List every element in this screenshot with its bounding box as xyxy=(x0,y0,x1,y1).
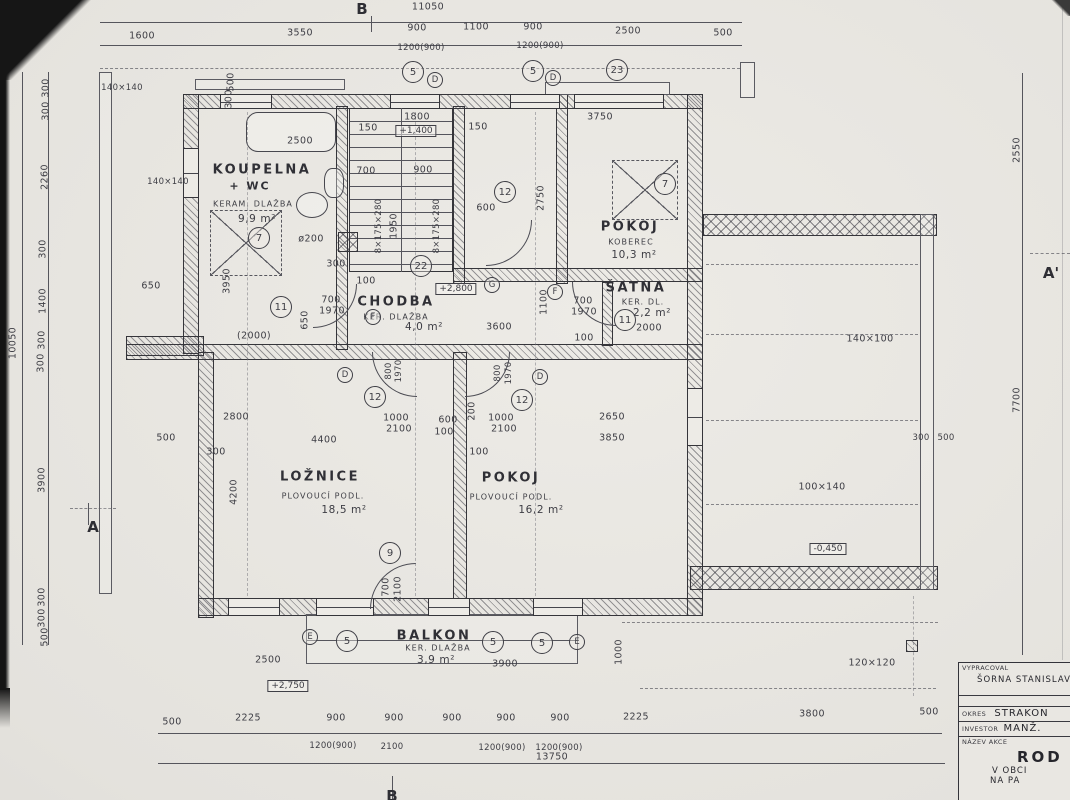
marker-5: 5 xyxy=(402,61,424,83)
room-sub-plovouc-podl-: PLOVOUCÍ PODL. xyxy=(470,493,553,502)
dim-2650: 2650 xyxy=(599,412,625,423)
wall-left-upper xyxy=(183,94,199,354)
dim-1400: 1400 xyxy=(38,288,49,314)
dim-300: 300 xyxy=(41,78,52,97)
wall-terrace-right xyxy=(920,214,934,590)
room-sub-ker-dl-: KER. DL. xyxy=(622,298,665,307)
elevation-plus-1400: +1,400 xyxy=(395,125,436,137)
window-right xyxy=(687,388,703,446)
floor-plan-photo: BBAA'11050160035509001200(900)1100900120… xyxy=(0,0,1070,800)
dim-300: 300 xyxy=(38,239,49,258)
wall-stub-top-right xyxy=(740,62,755,98)
beam-top-left xyxy=(195,79,345,90)
marker-g: G xyxy=(484,277,500,293)
dim-300: 300 xyxy=(224,89,235,108)
dim-sub-300: 300 xyxy=(912,433,929,443)
marker-22: 22 xyxy=(410,255,432,277)
axis-line-vertical xyxy=(415,112,416,596)
dim-1970: 1970 xyxy=(571,307,597,318)
dim-sub-1200-900-: 1200(900) xyxy=(478,743,525,753)
titleblock-nazev-label: NÁZEV AKCE xyxy=(962,738,1070,746)
room-label-wc: + WC xyxy=(229,180,270,193)
marker-9: 9 xyxy=(379,542,401,564)
marker-e: E xyxy=(302,629,318,645)
dim-650: 650 xyxy=(141,281,160,292)
room-label-balkon: BALKON xyxy=(397,629,472,644)
dim-3900: 3900 xyxy=(37,467,48,493)
door-arc-pokoj-top xyxy=(486,220,532,266)
photo-corner-top-right xyxy=(1044,0,1070,16)
dim-3550: 3550 xyxy=(287,28,313,39)
marker-f: F xyxy=(365,309,381,325)
dim-700: 700 xyxy=(573,296,592,307)
dim-2225: 2225 xyxy=(623,712,649,723)
titleblock-nazev-line3: NA PA xyxy=(990,776,1070,786)
dim-sub-8-175-280: 8×175×280 xyxy=(432,199,442,254)
dim-900: 900 xyxy=(442,713,461,724)
dim-200: 200 xyxy=(467,401,478,420)
dim-3600: 3600 xyxy=(486,322,512,333)
marker-f: F xyxy=(547,284,563,300)
dim-500: 500 xyxy=(40,627,51,646)
dim-2260: 2260 xyxy=(40,164,51,190)
dim-1800: 1800 xyxy=(404,112,430,123)
marker-d: D xyxy=(545,70,561,86)
room-sub-ker-dla-ba: KER. DLAŽBA xyxy=(405,644,470,653)
window-top-3 xyxy=(510,94,560,109)
elevation-plus-2750: +2,750 xyxy=(267,680,308,692)
terrace-line-lower xyxy=(622,622,938,623)
area-10-3-m-: 10,3 m² xyxy=(611,249,656,261)
wall-stair-right xyxy=(453,106,465,284)
titleblock-vypracoval-label: VYPRACOVAL xyxy=(962,664,1070,672)
marker-7: 7 xyxy=(248,227,270,249)
dim-300: 300 xyxy=(41,101,52,120)
dim-650: 650 xyxy=(300,310,311,329)
washbasin xyxy=(296,192,328,218)
axis-b-tick-top xyxy=(371,16,372,32)
dim-300: 300 xyxy=(37,330,48,349)
room-label-pokoj-bottom: POKOJ xyxy=(482,471,540,486)
dim-300: 300 xyxy=(37,608,48,627)
dim-2500: 2500 xyxy=(255,655,281,666)
dim-600: 600 xyxy=(438,415,457,426)
wall-pokoj-top-left xyxy=(556,94,568,284)
dim-line-bottom-total xyxy=(158,763,945,764)
room-label-koupelna: KOUPELNA xyxy=(213,163,312,178)
room-sub-keram-dla-ba: KERAM. DLAŽBA xyxy=(213,200,293,209)
marker-11: 11 xyxy=(614,309,636,331)
door-balcony-opening xyxy=(428,598,470,616)
dim-1950: 1950 xyxy=(389,213,400,239)
dim-300: 300 xyxy=(326,259,345,270)
dim-line-left-segments xyxy=(48,72,49,645)
dim-2100: 2100 xyxy=(386,424,412,435)
toilet xyxy=(324,168,344,198)
dim-900: 900 xyxy=(326,713,345,724)
dim-4400: 4400 xyxy=(311,435,337,446)
terrace-line xyxy=(706,264,918,265)
marker-12: 12 xyxy=(511,389,533,411)
dim-140-100: 140×100 xyxy=(846,334,893,345)
dim-1600: 1600 xyxy=(129,31,155,42)
dim-900: 900 xyxy=(384,713,403,724)
dim-sub-140-140: 140×140 xyxy=(147,177,189,187)
dim-150: 150 xyxy=(358,123,377,134)
titleblock-investor-value: MANŽ. xyxy=(1004,723,1042,734)
marker-7: 7 xyxy=(654,173,676,195)
dim-900: 900 xyxy=(496,713,515,724)
dim-3750: 3750 xyxy=(587,112,613,123)
terrace-line-vertical xyxy=(913,596,914,696)
dim-2000: 2000 xyxy=(636,323,662,334)
window-top-4 xyxy=(574,94,664,109)
dim-3850: 3850 xyxy=(599,433,625,444)
wall-right xyxy=(687,94,703,616)
marker-d: D xyxy=(532,369,548,385)
dim-500: 500 xyxy=(919,707,938,718)
marker-e: E xyxy=(569,634,585,650)
dim-1000: 1000 xyxy=(383,413,409,424)
dim-100: 100 xyxy=(434,427,453,438)
dim-100: 100 xyxy=(574,333,593,344)
paper-fold-line xyxy=(1062,0,1063,660)
section-a: A xyxy=(87,518,99,536)
dim-sub-8-175-280: 8×175×280 xyxy=(374,199,384,254)
room-label-chodba: CHODBA xyxy=(357,295,434,310)
dim-700: 700 xyxy=(381,577,392,596)
dim-2100: 2100 xyxy=(491,424,517,435)
dim-900: 900 xyxy=(523,22,542,33)
dim-1970: 1970 xyxy=(319,306,345,317)
dim-2550: 2550 xyxy=(1012,137,1023,163)
dim-300: 300 xyxy=(37,587,48,606)
section-a-prime-line xyxy=(1030,253,1070,254)
window-bottom-3 xyxy=(533,598,583,616)
dim-3800: 3800 xyxy=(799,709,825,720)
titleblock-investor-label: INVESTOR xyxy=(962,725,998,733)
dim-3950: 3950 xyxy=(222,268,233,294)
titleblock-vypracoval-value: ŠORNA STANISLAV xyxy=(962,675,1070,685)
dim-sub-2100: 2100 xyxy=(381,742,404,752)
room-sub-plovouc-podl-: PLOVOUCÍ PODL. xyxy=(282,492,365,501)
titleblock-nazev-line2: V OBCI xyxy=(992,766,1070,776)
dim-100: 100 xyxy=(469,447,488,458)
marker-5: 5 xyxy=(531,632,553,654)
dim-1000: 1000 xyxy=(488,413,514,424)
dim-2100: 2100 xyxy=(393,576,404,602)
area-3-9-m-: 3,9 m² xyxy=(417,654,455,666)
dim-4200: 4200 xyxy=(229,479,240,505)
dim-1100: 1100 xyxy=(463,22,489,33)
axis-b-top: B xyxy=(356,0,367,18)
wall-left-lower xyxy=(198,352,214,618)
dim-sub-1200-900-: 1200(900) xyxy=(397,43,444,53)
dim-700: 700 xyxy=(356,166,375,177)
room-sub-koberec: KOBEREC xyxy=(608,238,654,247)
floor-drain xyxy=(338,232,358,252)
room-label-satna: ŠATNA xyxy=(606,281,667,296)
dim-sub-140-140: 140×140 xyxy=(101,83,143,93)
dim-500: 500 xyxy=(162,717,181,728)
dim--2000-: (2000) xyxy=(237,331,271,342)
dim-500: 500 xyxy=(713,28,732,39)
marker-11: 11 xyxy=(270,296,292,318)
marker-d: D xyxy=(427,72,443,88)
dim-120-120: 120×120 xyxy=(848,658,895,669)
dim-700: 700 xyxy=(321,295,340,306)
titleblock-okres-value: STRAKON xyxy=(994,708,1048,719)
dim-sub-800: 800 xyxy=(384,362,394,379)
area-9-9-m-: 9,9 m² xyxy=(238,213,276,225)
area-16-2-m-: 16,2 m² xyxy=(518,504,563,516)
dim-500: 500 xyxy=(156,433,175,444)
dim-7700: 7700 xyxy=(1012,387,1023,413)
area-18-5-m-: 18,5 m² xyxy=(321,504,366,516)
dim-2800: 2800 xyxy=(223,412,249,423)
marker-12: 12 xyxy=(364,386,386,408)
dim-900: 900 xyxy=(413,165,432,176)
dim-300: 300 xyxy=(36,353,47,372)
section-a-prime: A' xyxy=(1043,264,1059,282)
dim-sub-500: 500 xyxy=(937,433,954,443)
window-bottom-1 xyxy=(228,598,280,616)
dim-300: 300 xyxy=(206,447,225,458)
dim-2500: 2500 xyxy=(287,136,313,147)
marker-12: 12 xyxy=(494,181,516,203)
dim-900: 900 xyxy=(407,23,426,34)
dim-line-bottom-segments xyxy=(158,733,942,734)
dim-sub-800: 800 xyxy=(493,364,503,381)
marker-d: D xyxy=(337,367,353,383)
dim-sub-1970: 1970 xyxy=(504,362,514,385)
room-label-pokoj-top: POKOJ xyxy=(601,220,659,235)
area-2-2-m-: 2,2 m² xyxy=(633,307,671,319)
titleblock-nazev-line1: ROD xyxy=(1017,748,1070,766)
elevation-plus-2800: +2,800 xyxy=(435,283,476,295)
marker-5: 5 xyxy=(522,60,544,82)
marker-5: 5 xyxy=(482,631,504,653)
titleblock-okres-label: OKRES xyxy=(962,710,986,718)
dim-2500: 2500 xyxy=(615,26,641,37)
terrace-line xyxy=(706,504,918,505)
photo-edge-left xyxy=(0,38,10,690)
elevation-minus-0450: -0,450 xyxy=(809,543,846,555)
title-block: VYPRACOVAL ŠORNA STANISLAV OKRES STRAKON… xyxy=(958,662,1070,800)
terrace-line xyxy=(706,420,918,421)
post-120x120 xyxy=(906,640,918,652)
dim-150: 150 xyxy=(468,122,487,133)
photo-corner-top-left xyxy=(0,0,96,80)
wall-terrace-bottom xyxy=(690,566,938,590)
dim-600: 600 xyxy=(476,203,495,214)
area-4-0-m-: 4,0 m² xyxy=(405,321,443,333)
dim-11050: 11050 xyxy=(412,2,444,13)
dim-3900: 3900 xyxy=(492,659,518,670)
terrace-line-lower xyxy=(640,688,936,689)
wall-terrace-top xyxy=(703,214,937,236)
dim--200: ø200 xyxy=(298,234,324,245)
dim-sub-1200-900-: 1200(900) xyxy=(516,41,563,51)
window-left xyxy=(183,148,199,198)
axis-b-bottom: B xyxy=(386,787,397,800)
dim-line-left-total xyxy=(22,72,23,645)
dim-900: 900 xyxy=(550,713,569,724)
dim-sub-1970: 1970 xyxy=(394,360,404,383)
porch-posts-left xyxy=(99,72,112,594)
dim-13750: 13750 xyxy=(536,752,568,763)
dim-100: 100 xyxy=(356,276,375,287)
window-top-2 xyxy=(390,94,440,109)
dim-sub-1200-900-: 1200(900) xyxy=(309,741,356,751)
photo-corner-bottom-left xyxy=(0,688,10,728)
marker-5: 5 xyxy=(336,630,358,652)
dim-2750: 2750 xyxy=(536,185,547,211)
dim-100-140: 100×140 xyxy=(798,482,845,493)
dim-2225: 2225 xyxy=(235,713,261,724)
dim-1000: 1000 xyxy=(614,639,625,665)
window-bottom-2 xyxy=(316,598,374,616)
marker-23: 23 xyxy=(606,59,628,81)
room-label-loznice: LOŽNICE xyxy=(280,470,360,485)
